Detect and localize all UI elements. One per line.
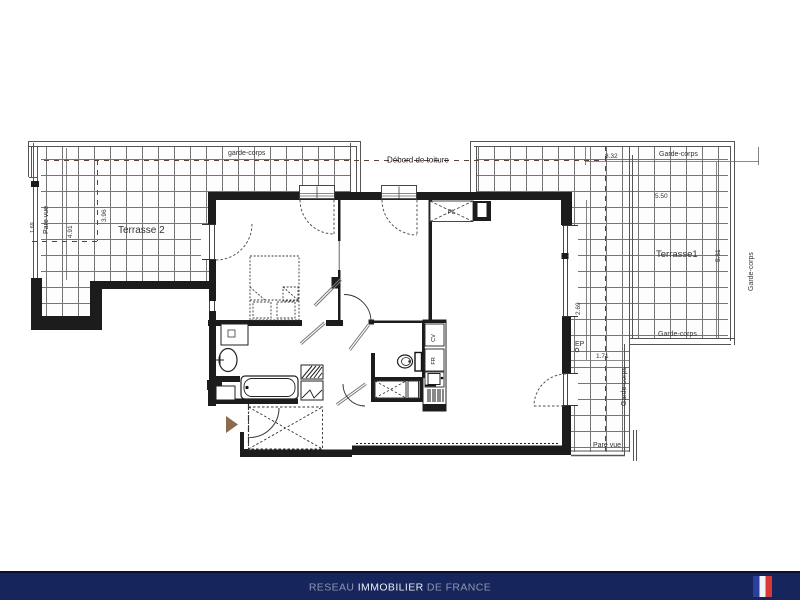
svg-text:Garde-corps: Garde-corps [658, 331, 697, 338]
svg-text:Pare vue: Pare vue [593, 442, 621, 449]
svg-text:RESEAU IMMOBILIER DE FRANCE: RESEAU IMMOBILIER DE FRANCE [309, 582, 491, 594]
svg-text:4.91: 4.91 [67, 225, 74, 238]
svg-text:1.69: 1.69 [30, 222, 36, 233]
svg-text:Terrasse 2: Terrasse 2 [118, 225, 165, 236]
svg-text:Débord de toiture: Débord de toiture [387, 156, 449, 165]
svg-text:CV: CV [431, 334, 437, 342]
svg-text:8.32: 8.32 [605, 153, 618, 160]
svg-text:Garde-corps: Garde-corps [621, 367, 628, 406]
svg-text:5.61: 5.61 [715, 249, 722, 262]
svg-text:EP: EP [575, 341, 585, 348]
svg-text:Garde-corps: Garde-corps [659, 151, 698, 158]
svg-text:5.50: 5.50 [655, 193, 668, 200]
svg-text:1.71: 1.71 [596, 353, 609, 360]
svg-text:2.69: 2.69 [575, 302, 582, 315]
svg-text:PL: PL [448, 210, 456, 216]
svg-text:Pare vue: Pare vue [43, 206, 50, 234]
svg-text:garde-corps: garde-corps [228, 150, 266, 157]
svg-text:FR: FR [431, 357, 437, 364]
svg-text:Garde-corps: Garde-corps [748, 252, 755, 291]
svg-text:3.96: 3.96 [101, 209, 108, 222]
svg-text:Terrasse1: Terrasse1 [656, 249, 698, 260]
